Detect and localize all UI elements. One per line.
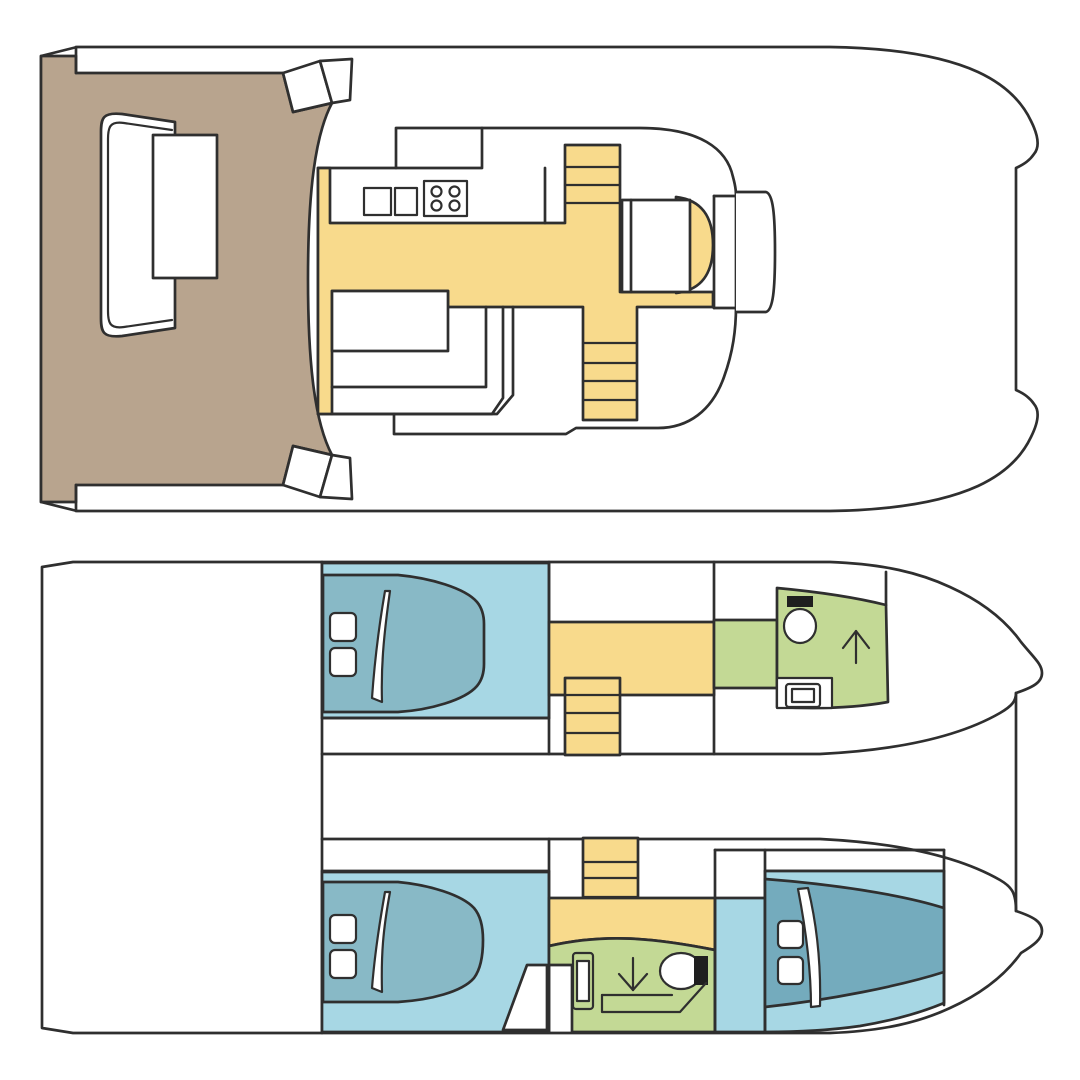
upper-deck — [41, 47, 1038, 511]
pillow-icon — [330, 915, 356, 943]
stove-icon — [424, 181, 467, 216]
port-stairs — [565, 678, 620, 755]
washbasin-icon — [573, 953, 593, 1009]
cockpit-table — [153, 135, 217, 278]
bow-seat — [736, 192, 775, 312]
washbasin-icon — [786, 684, 820, 707]
lower-deck — [42, 562, 1042, 1033]
toilet-icon — [784, 596, 816, 643]
toilet-icon — [660, 953, 708, 989]
pillow-icon — [330, 950, 356, 978]
sink-icon — [395, 188, 417, 215]
double-bed — [323, 575, 484, 712]
dinette-table — [332, 291, 448, 351]
pillow-icon — [778, 921, 803, 948]
sink-icon — [364, 188, 391, 215]
pillow-icon — [330, 613, 356, 641]
pillow-icon — [778, 957, 803, 984]
passage-floor — [715, 898, 765, 1032]
catamaran-floor-plan — [0, 0, 1080, 1080]
pillow-icon — [330, 648, 356, 676]
port-bathroom-entry — [714, 620, 777, 688]
